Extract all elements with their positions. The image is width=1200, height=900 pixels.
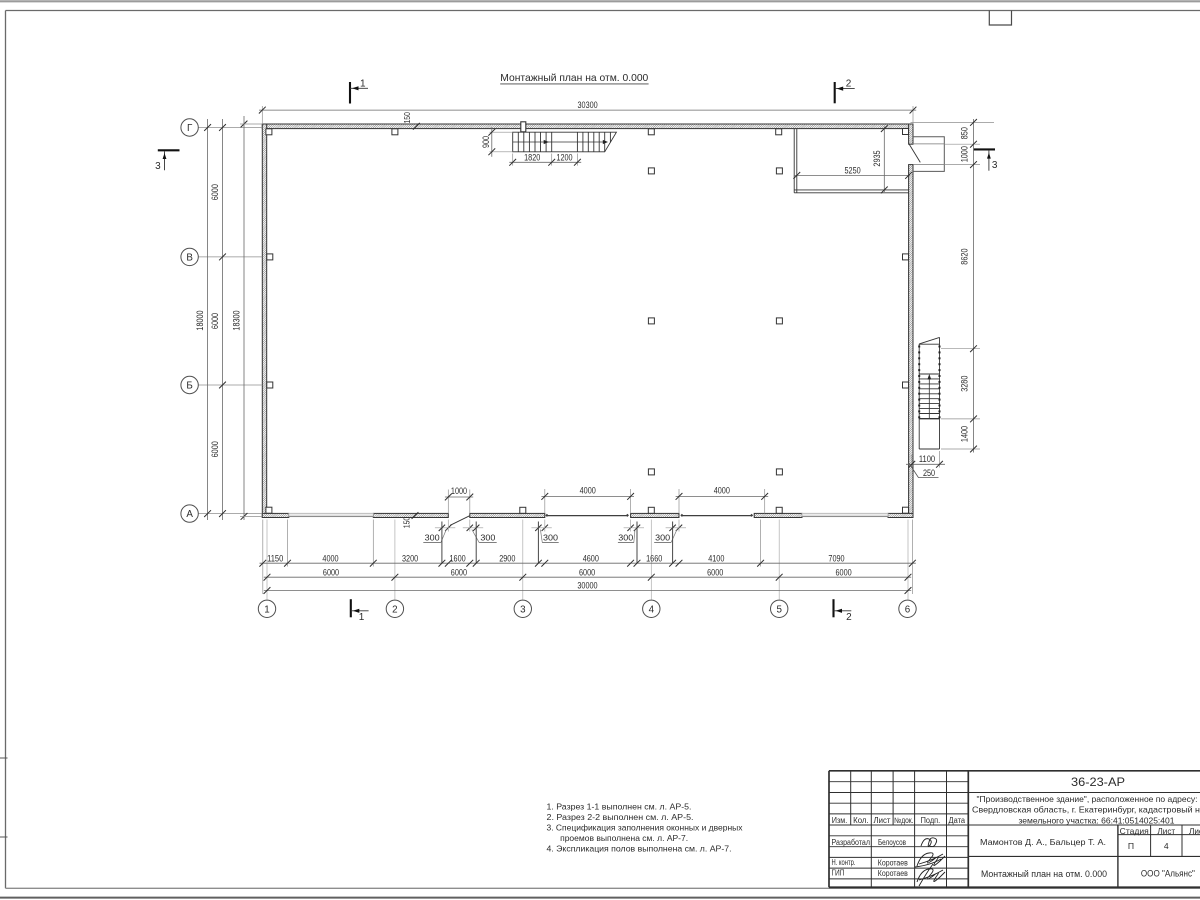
- svg-text:Белоусов: Белоусов: [878, 838, 906, 847]
- svg-text:6: 6: [905, 604, 911, 615]
- svg-text:6000: 6000: [451, 567, 467, 577]
- svg-text:6000: 6000: [210, 184, 220, 200]
- svg-text:Монтажный план на отм. 0.000: Монтажный план на отм. 0.000: [981, 869, 1107, 879]
- svg-text:1000: 1000: [959, 146, 969, 162]
- svg-text:30300: 30300: [578, 100, 598, 110]
- svg-text:В: В: [186, 252, 193, 263]
- svg-text:2935: 2935: [872, 150, 882, 166]
- svg-text:6000: 6000: [210, 313, 220, 329]
- svg-text:3: 3: [520, 604, 526, 615]
- svg-text:4100: 4100: [708, 553, 724, 563]
- svg-text:300: 300: [425, 533, 440, 543]
- svg-text:1150: 1150: [267, 553, 283, 563]
- svg-text:Подп.: Подп.: [921, 816, 941, 825]
- svg-text:300: 300: [618, 533, 633, 543]
- svg-text:1000: 1000: [451, 486, 467, 496]
- svg-text:6000: 6000: [579, 567, 595, 577]
- svg-text:150: 150: [402, 516, 411, 528]
- svg-text:1: 1: [360, 79, 366, 90]
- svg-text:Дата: Дата: [949, 816, 966, 825]
- svg-text:1200: 1200: [556, 152, 572, 162]
- svg-text:1: 1: [359, 612, 365, 623]
- svg-text:2: 2: [846, 612, 852, 623]
- svg-text:земельного участка: 66:41:0514: земельного участка: 66:41:0514025:401: [1019, 815, 1175, 825]
- svg-text:Н. контр.: Н. контр.: [832, 858, 856, 867]
- svg-text:250: 250: [923, 468, 935, 478]
- svg-text:Лист: Лист: [874, 816, 891, 825]
- svg-text:2: 2: [392, 604, 397, 615]
- svg-text:150: 150: [403, 112, 412, 124]
- svg-text:4. Экспликация полов выполнена: 4. Экспликация полов выполнена см. л. АР…: [547, 843, 732, 853]
- svg-text:300: 300: [655, 533, 670, 543]
- svg-text:8620: 8620: [959, 249, 969, 265]
- svg-text:П: П: [1128, 841, 1134, 851]
- svg-text:3: 3: [155, 161, 161, 172]
- svg-text:№док.: №док.: [894, 816, 914, 825]
- svg-text:4000: 4000: [580, 486, 596, 496]
- svg-text:2: 2: [846, 79, 852, 90]
- svg-text:5: 5: [776, 604, 782, 615]
- svg-text:5250: 5250: [845, 165, 861, 175]
- svg-text:Лист: Лист: [1157, 827, 1175, 836]
- svg-text:4000: 4000: [714, 486, 730, 496]
- svg-text:30000: 30000: [577, 581, 597, 591]
- svg-text:4600: 4600: [583, 553, 599, 563]
- svg-text:Стадия: Стадия: [1120, 827, 1149, 836]
- svg-text:36-23-АР: 36-23-АР: [1071, 775, 1125, 789]
- svg-text:6000: 6000: [707, 567, 723, 577]
- svg-text:3: 3: [992, 160, 998, 171]
- svg-text:3280: 3280: [959, 376, 969, 392]
- svg-text:1. Разрез 1-1 выполнен см. л.: 1. Разрез 1-1 выполнен см. л. АР-5.: [547, 801, 692, 811]
- svg-text:18000: 18000: [195, 310, 205, 330]
- svg-text:1660: 1660: [646, 553, 662, 563]
- svg-text:"Производственное здание", рас: "Производственное здание", расположенное…: [977, 794, 1198, 804]
- svg-text:6000: 6000: [323, 567, 339, 577]
- svg-text:1100: 1100: [919, 454, 935, 464]
- svg-text:Свердловская область, г. Екате: Свердловская область, г. Екатеринбург, к…: [972, 805, 1200, 815]
- svg-text:ГИП: ГИП: [832, 869, 845, 878]
- svg-text:Коротаев: Коротаев: [878, 869, 908, 878]
- svg-text:Б: Б: [186, 381, 192, 392]
- svg-text:3. Спецификация заполнения око: 3. Спецификация заполнения оконных и две…: [547, 822, 744, 832]
- svg-text:Изм.: Изм.: [832, 816, 848, 825]
- svg-text:1400: 1400: [959, 426, 969, 442]
- svg-text:Г: Г: [187, 123, 193, 134]
- svg-text:Мамонтов Д. А., Бальцер Т. А.: Мамонтов Д. А., Бальцер Т. А.: [980, 837, 1106, 847]
- svg-text:4000: 4000: [322, 553, 338, 563]
- svg-text:4: 4: [649, 604, 655, 615]
- svg-text:1600: 1600: [450, 553, 466, 563]
- svg-text:Лис: Лис: [1189, 827, 1200, 836]
- svg-text:300: 300: [480, 533, 495, 543]
- svg-text:2. Разрез 2-2 выполнен см. л.: 2. Разрез 2-2 выполнен см. л. АР-5.: [547, 812, 694, 822]
- svg-text:1820: 1820: [524, 152, 540, 162]
- svg-text:850: 850: [959, 127, 969, 139]
- svg-text:Монтажный план на отм. 0.000: Монтажный план на отм. 0.000: [500, 73, 648, 84]
- svg-text:ООО "Альянс": ООО "Альянс": [1141, 868, 1195, 878]
- svg-text:Разработал: Разработал: [832, 838, 871, 847]
- svg-text:6000: 6000: [836, 567, 852, 577]
- svg-text:проемов выполнена см. л. АР-7.: проемов выполнена см. л. АР-7.: [560, 833, 688, 843]
- svg-text:3200: 3200: [402, 553, 418, 563]
- svg-text:Кол.: Кол.: [853, 816, 869, 825]
- svg-text:1: 1: [264, 604, 269, 615]
- svg-text:7090: 7090: [828, 553, 844, 563]
- svg-text:6000: 6000: [210, 441, 220, 457]
- svg-text:2900: 2900: [499, 553, 515, 563]
- svg-text:18300: 18300: [231, 310, 241, 330]
- svg-text:4: 4: [1164, 841, 1169, 851]
- svg-text:900: 900: [481, 136, 491, 148]
- svg-text:300: 300: [543, 533, 558, 543]
- svg-text:А: А: [186, 509, 193, 520]
- svg-text:Коротаев: Коротаев: [878, 859, 908, 868]
